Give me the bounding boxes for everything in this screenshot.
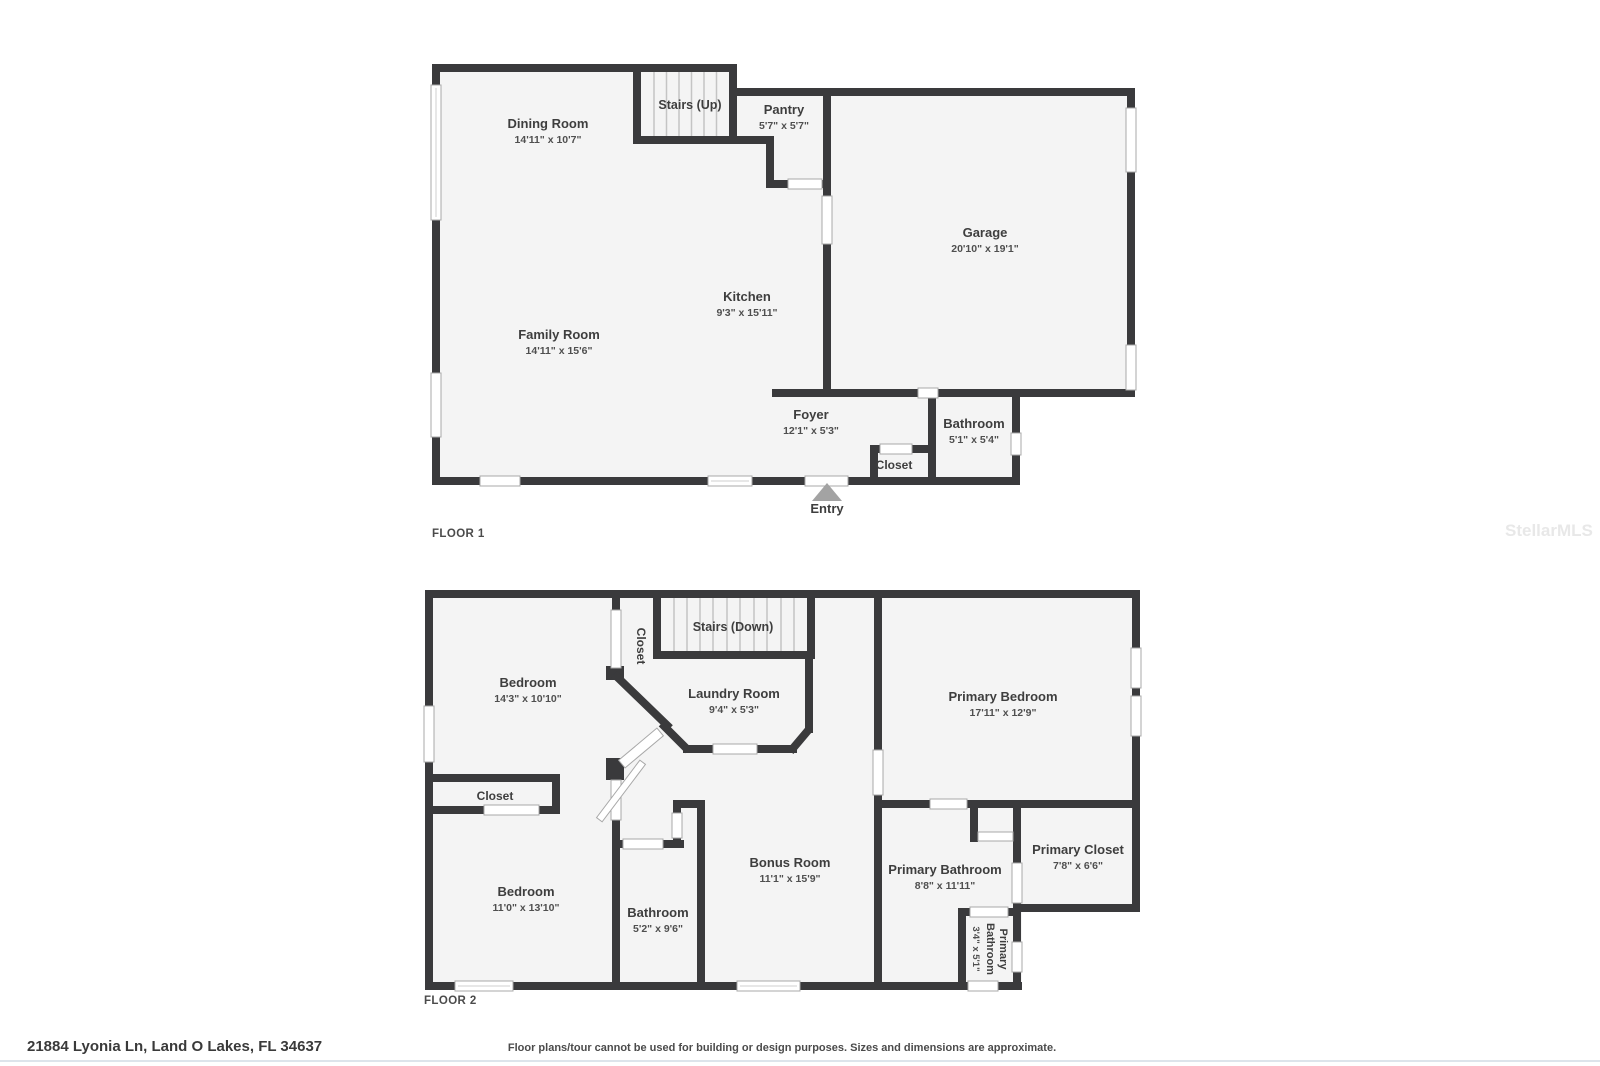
property-address: 21884 Lyonia Ln, Land O Lakes, FL 34637 (27, 1038, 322, 1055)
room-label-dining: Dining Room (508, 116, 589, 131)
entry-label: Entry (810, 501, 844, 516)
room-dims-bedroom2: 11'0" x 13'10" (493, 902, 560, 914)
floor2-plan: Bedroom 14'3" x 10'10" Closet Stairs (Do… (424, 590, 1141, 991)
room-dims-family: 14'11" x 15'6" (526, 345, 593, 357)
room-dims-pantry: 5'7" x 5'7" (759, 120, 809, 132)
room-dims-dining: 14'11" x 10'7" (515, 134, 582, 146)
room-dims-bedroom1: 14'3" x 10'10" (494, 693, 562, 705)
disclaimer-text: Floor plans/tour cannot be used for buil… (508, 1042, 1056, 1054)
floor-plan-page: Dining Room 14'11" x 10'7" Stairs (Up) P… (0, 0, 1600, 1066)
room-label-kitchen: Kitchen (723, 289, 771, 304)
room-label-stairs-up: Stairs (Up) (658, 98, 721, 112)
room-label-foyer: Foyer (793, 407, 828, 422)
room-label-pantry: Pantry (764, 102, 805, 117)
room-label-primary-closet: Primary Closet (1032, 842, 1124, 857)
room-label-closet-f2: Closet (477, 789, 514, 803)
room-label-bathroom-f1: Bathroom (943, 416, 1004, 431)
floor1-plan: Dining Room 14'11" x 10'7" Stairs (Up) P… (431, 64, 1136, 516)
room-label-closet-f1: Closet (876, 458, 913, 472)
room-dims-primary-closet: 7'8" x 6'6" (1053, 860, 1103, 872)
stellar-mls-watermark: StellarMLS (1505, 521, 1593, 541)
room-dims-bathroom-f2: 5'2" x 9'6" (633, 923, 683, 935)
room-dims-laundry: 9'4" x 5'3" (709, 704, 759, 716)
room-label-stairs-down: Stairs (Down) (693, 620, 774, 634)
bottom-divider (0, 1060, 1600, 1062)
room-dims-garage: 20'10" x 19'1" (951, 243, 1019, 255)
room-label-primary-bathroom: Primary Bathroom (888, 862, 1001, 877)
room-label-bedroom2: Bedroom (497, 884, 554, 899)
room-label-garage: Garage (963, 225, 1008, 240)
room-label-primary-bedroom: Primary Bedroom (948, 689, 1057, 704)
room-label-primary-wc-line1: Primary (997, 929, 1009, 971)
room-label-hall-closet: Closet (634, 628, 648, 665)
room-label-laundry: Laundry Room (688, 686, 780, 701)
room-label-primary-wc-line2: Bathroom (984, 923, 996, 975)
floor2-label: FLOOR 2 (424, 995, 477, 1007)
room-dims-foyer: 12'1" x 5'3" (783, 425, 839, 437)
room-dims-primary-wc: 3'4" x 5'1" (970, 926, 981, 971)
room-label-bedroom1: Bedroom (499, 675, 556, 690)
floor-plan-canvas: Dining Room 14'11" x 10'7" Stairs (Up) P… (0, 0, 1600, 1066)
room-label-family: Family Room (518, 327, 600, 342)
room-dims-bathroom-f1: 5'1" x 5'4" (949, 434, 999, 446)
room-label-bathroom-f2: Bathroom (627, 905, 688, 920)
room-label-bonus: Bonus Room (750, 855, 831, 870)
floor2-room-fills (425, 590, 1140, 990)
room-dims-primary-bathroom: 8'8" x 11'11" (915, 880, 976, 892)
room-dims-kitchen: 9'3" x 15'11" (716, 307, 777, 319)
room-dims-bonus: 11'1" x 15'9" (759, 873, 820, 885)
floor1-label: FLOOR 1 (432, 528, 485, 540)
room-dims-primary-bedroom: 17'11" x 12'9" (970, 707, 1037, 719)
